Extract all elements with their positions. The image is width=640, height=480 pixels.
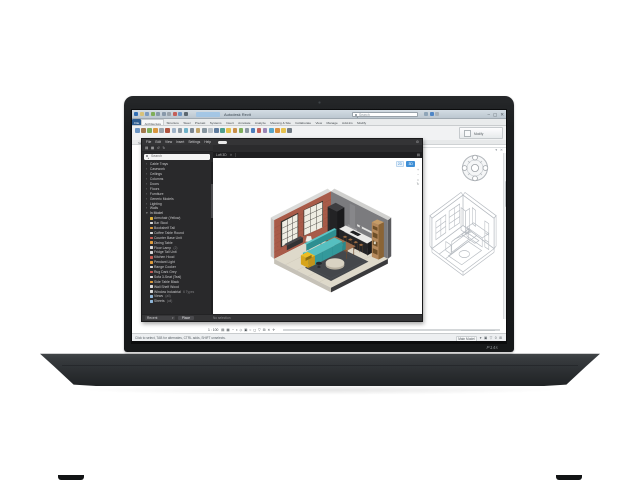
ribbon-tab[interactable]: Systems (208, 119, 224, 125)
family-type-icon (150, 271, 153, 274)
room-3d-render (244, 163, 418, 304)
railing-tool-icon[interactable] (202, 128, 207, 133)
status-tool-icon[interactable]: ▽ (490, 336, 493, 342)
family-type-icon (150, 300, 153, 303)
tab-divider (235, 153, 236, 157)
callout-tool-icon[interactable] (263, 128, 268, 133)
window-controls: – ▢ ✕ (487, 111, 504, 118)
window-title: Autodesk Revit (224, 112, 251, 117)
laptop-screen: Autodesk Revit Search – ▢ ✕ (131, 109, 507, 344)
family-type-icon (150, 227, 153, 230)
family-type-icon (150, 241, 153, 244)
window-tool-icon[interactable] (147, 128, 152, 133)
room-tool-icon[interactable] (226, 128, 231, 133)
palette-tool-icon[interactable]: ▦ (151, 146, 154, 151)
model-text-icon[interactable] (214, 128, 219, 133)
tag-icon[interactable] (178, 112, 182, 116)
view-control-icon[interactable]: ⊞ (263, 328, 266, 333)
laptop-foot-left (58, 475, 84, 480)
tree-search-input[interactable]: Search (144, 154, 210, 160)
ramp-tool-icon[interactable] (208, 128, 213, 133)
column-tool-icon[interactable] (159, 128, 164, 133)
stairs-tool-icon[interactable] (196, 128, 201, 133)
roof-tool-icon[interactable] (165, 128, 170, 133)
tag-room-icon[interactable] (239, 128, 244, 133)
render-icon[interactable] (275, 128, 280, 133)
ceiling-tool-icon[interactable] (172, 128, 177, 133)
main-model-dropdown[interactable]: Main Model (456, 336, 477, 342)
quick-access-toolbar (134, 112, 188, 116)
component-tool-icon[interactable] (153, 128, 158, 133)
grid-tool-icon[interactable] (190, 128, 195, 133)
chevron-right-icon[interactable]: › (146, 172, 149, 176)
redo-icon[interactable] (162, 112, 166, 116)
family-type-icon (150, 256, 153, 259)
family-type-icon (150, 276, 153, 279)
family-type-icon (150, 285, 153, 288)
status-tool-icon[interactable]: ⊞ (499, 336, 502, 342)
chevron-down-icon[interactable]: ▾ (146, 211, 149, 215)
view-corner-controls[interactable]: ▾ ✕ (495, 148, 504, 152)
minimize-button[interactable]: – (487, 111, 490, 118)
zoom-tool-icon[interactable]: − (416, 174, 419, 178)
maximize-button[interactable]: ▢ (493, 111, 497, 118)
status-right-cluster: Main Model ▾▣▽0⊞ (456, 336, 502, 342)
close-button[interactable]: ✕ (500, 111, 504, 118)
ribbon-tab[interactable]: Precast (193, 119, 208, 125)
shadow-toggle-icon[interactable] (287, 128, 292, 133)
save-icon[interactable] (145, 112, 149, 116)
ribbon-tab[interactable]: View (313, 119, 324, 125)
chevron-right-icon[interactable]: › (146, 162, 149, 166)
family-type-icon (150, 232, 153, 235)
ribbon-tab[interactable]: Architecture (141, 119, 164, 125)
chevron-right-icon[interactable]: › (146, 197, 149, 201)
webcam-dot (318, 101, 321, 104)
zoom-tool-icon[interactable]: ↻ (416, 183, 419, 187)
laptop-foot-right (556, 475, 582, 480)
ribbon-tools (135, 128, 445, 133)
view-3d-icon[interactable] (269, 128, 274, 133)
palette-canvas: Loft 3D ✕ ▤ (213, 152, 422, 314)
measure-icon[interactable] (173, 112, 177, 116)
titlebar-mini-icons (424, 112, 439, 116)
status-hint-text: Click to select, TAB for alternates, CTR… (135, 336, 226, 340)
view-control-icon[interactable]: ◔ (232, 328, 234, 333)
family-type-icon (150, 222, 153, 225)
chevron-right-icon[interactable]: › (146, 187, 149, 191)
title-highlight (196, 112, 220, 117)
ribbon-tab-row: FileArchitectureStructureSteelPrecastSys… (132, 119, 506, 126)
area-tool-icon[interactable] (233, 128, 238, 133)
status-bar: Click to select, TAB for alternates, CTR… (132, 333, 506, 341)
ribbon-tab[interactable]: Insert (224, 119, 236, 125)
view-control-icon[interactable]: ▽ (258, 328, 261, 333)
family-type-icon (150, 251, 153, 254)
ribbon-tab[interactable]: Manage (324, 119, 340, 125)
recent-dropdown[interactable]: Recent ▾ (145, 316, 175, 321)
undo-icon[interactable] (156, 112, 160, 116)
chevron-right-icon[interactable]: › (146, 182, 149, 186)
titlebar-search-input[interactable]: Search (352, 112, 418, 117)
ribbon-tab[interactable]: Steel (181, 119, 192, 125)
marketing-stage: P14s Autodesk Revit Search (0, 0, 640, 480)
chevron-down-icon: ▾ (172, 316, 174, 321)
horizontal-scrollbar[interactable] (283, 329, 500, 332)
status-tool-icon[interactable]: ▣ (484, 336, 487, 342)
gear-icon[interactable]: ⚙ (416, 140, 419, 144)
laptop-base (40, 351, 600, 386)
family-type-icon (150, 295, 153, 298)
ribbon-tab[interactable]: Modify (355, 119, 369, 125)
chevron-right-icon[interactable]: › (146, 167, 149, 171)
modify-panel-label: Modify (474, 132, 483, 136)
modify-arrow-icon (464, 130, 471, 137)
drawing-area[interactable]: ▾ ✕ (132, 145, 506, 333)
search-icon (146, 155, 148, 157)
text-tool-icon[interactable] (245, 128, 250, 133)
chevron-right-icon[interactable]: › (146, 202, 149, 206)
palette-toggle-pill[interactable] (218, 141, 227, 144)
tree-item-row[interactable]: Sheets (all) (142, 299, 211, 304)
open-icon[interactable] (140, 112, 144, 116)
3d-view-icon[interactable] (184, 112, 188, 116)
family-browser-window: FileEditViewInsertSettingsHelp ⚙ ▤▦↺↻ Se… (141, 138, 423, 322)
place-button[interactable]: Place (178, 316, 194, 321)
laptop-shadow (80, 385, 560, 395)
ribbon-tab[interactable]: File (132, 119, 141, 125)
view-control-icon[interactable]: ◑ (236, 328, 238, 333)
search-icon (355, 114, 357, 116)
print-icon[interactable] (167, 112, 171, 116)
chevron-right-icon[interactable]: › (146, 192, 149, 196)
status-tool-icon[interactable]: ▾ (480, 336, 482, 342)
view-control-icon[interactable]: ◻ (253, 328, 256, 333)
mode-3d-button[interactable]: 3D (406, 161, 415, 167)
canvas-mode-controls: 2D 3D (396, 161, 415, 167)
base-seam (62, 365, 577, 366)
palette-tool-icon[interactable]: ▤ (145, 146, 148, 151)
canvas-menu-icon[interactable]: ▤ (417, 153, 420, 157)
laptop-lid: P14s Autodesk Revit Search (124, 96, 514, 352)
laptop-model-logo: P14s (487, 345, 498, 350)
door-tool-icon[interactable] (141, 128, 146, 133)
model-line-icon[interactable] (220, 128, 225, 133)
tree-rows: › Cable Trays › Casework (142, 162, 211, 314)
dimension-tool-icon[interactable] (251, 128, 256, 133)
view-control-icon[interactable]: ✕ (267, 328, 270, 333)
chevron-right-icon[interactable]: › (146, 206, 149, 210)
view-control-icon[interactable]: ▦ (226, 328, 229, 333)
ribbon-tab[interactable]: Massing & Site (268, 119, 293, 125)
palette-tool-icon[interactable]: ↺ (157, 146, 160, 151)
view-control-icon[interactable]: ◇ (240, 328, 243, 333)
section-tool-icon[interactable] (257, 128, 262, 133)
family-type-icon (150, 266, 153, 269)
ribbon-tab[interactable]: Analyze (253, 119, 268, 125)
family-type-icon (150, 246, 153, 249)
palette-tool-icon[interactable]: ↻ (162, 146, 165, 151)
family-type-icon (150, 281, 153, 284)
revit-window: Autodesk Revit Search – ▢ ✕ (132, 110, 506, 341)
palette-bottom-bar: Recent ▾ Place No selection (142, 314, 422, 321)
family-type-icon (150, 237, 153, 240)
room-3d-viewport[interactable]: 2D 3D +−⌂↻ (213, 158, 422, 314)
modify-panel[interactable]: Modify (459, 127, 503, 139)
view-control-icon[interactable]: ▤ (221, 328, 224, 333)
palette-status-text: No selection (213, 316, 231, 320)
view-control-icon[interactable]: ✛ (272, 328, 275, 333)
family-type-icon (150, 290, 153, 293)
scale-select[interactable]: 1 : 100 (208, 328, 218, 332)
vertical-scrollbar[interactable] (503, 153, 506, 319)
vertical-scrollbar-thumb[interactable] (505, 181, 507, 207)
close-tab-icon[interactable]: ✕ (230, 153, 233, 157)
help-icon[interactable] (430, 112, 434, 116)
ribbon-tab[interactable]: Add-Ins (340, 119, 355, 125)
floor-tool-icon[interactable] (178, 128, 183, 133)
status-tool-icon[interactable]: 0 (495, 336, 497, 342)
view-control-icon[interactable]: ▣ (244, 328, 247, 333)
ribbon-tab[interactable]: Collaborate (293, 119, 313, 125)
chevron-right-icon[interactable]: › (146, 177, 149, 181)
mode-2d-button[interactable]: 2D (396, 161, 405, 167)
curtain-tool-icon[interactable] (184, 128, 189, 133)
family-tree-panel: Search › Cable Trays (142, 152, 213, 314)
view-top-border (422, 147, 506, 148)
canvas-zoom-toolbar: +−⌂↻ (416, 169, 419, 187)
account-icon[interactable] (424, 112, 428, 116)
family-type-icon (150, 217, 153, 220)
ribbon-tab[interactable]: Structure (164, 119, 181, 125)
view-control-icon[interactable]: ○ (249, 328, 251, 333)
ribbon-tab[interactable]: Annotate (236, 119, 253, 125)
app-titlebar: Autodesk Revit Search – ▢ ✕ (132, 110, 506, 119)
apps-icon[interactable] (435, 112, 439, 116)
wireframe-axon-view[interactable] (422, 179, 506, 313)
horizontal-scrollbar-thumb[interactable] (461, 330, 495, 332)
family-type-icon (150, 261, 153, 264)
palette-toolbar: ▤▦↺↻ (142, 145, 213, 152)
sync-icon[interactable] (151, 112, 155, 116)
wall-tool-icon[interactable] (135, 128, 140, 133)
app-logo-icon[interactable] (134, 112, 138, 116)
sun-settings-icon[interactable] (281, 128, 286, 133)
